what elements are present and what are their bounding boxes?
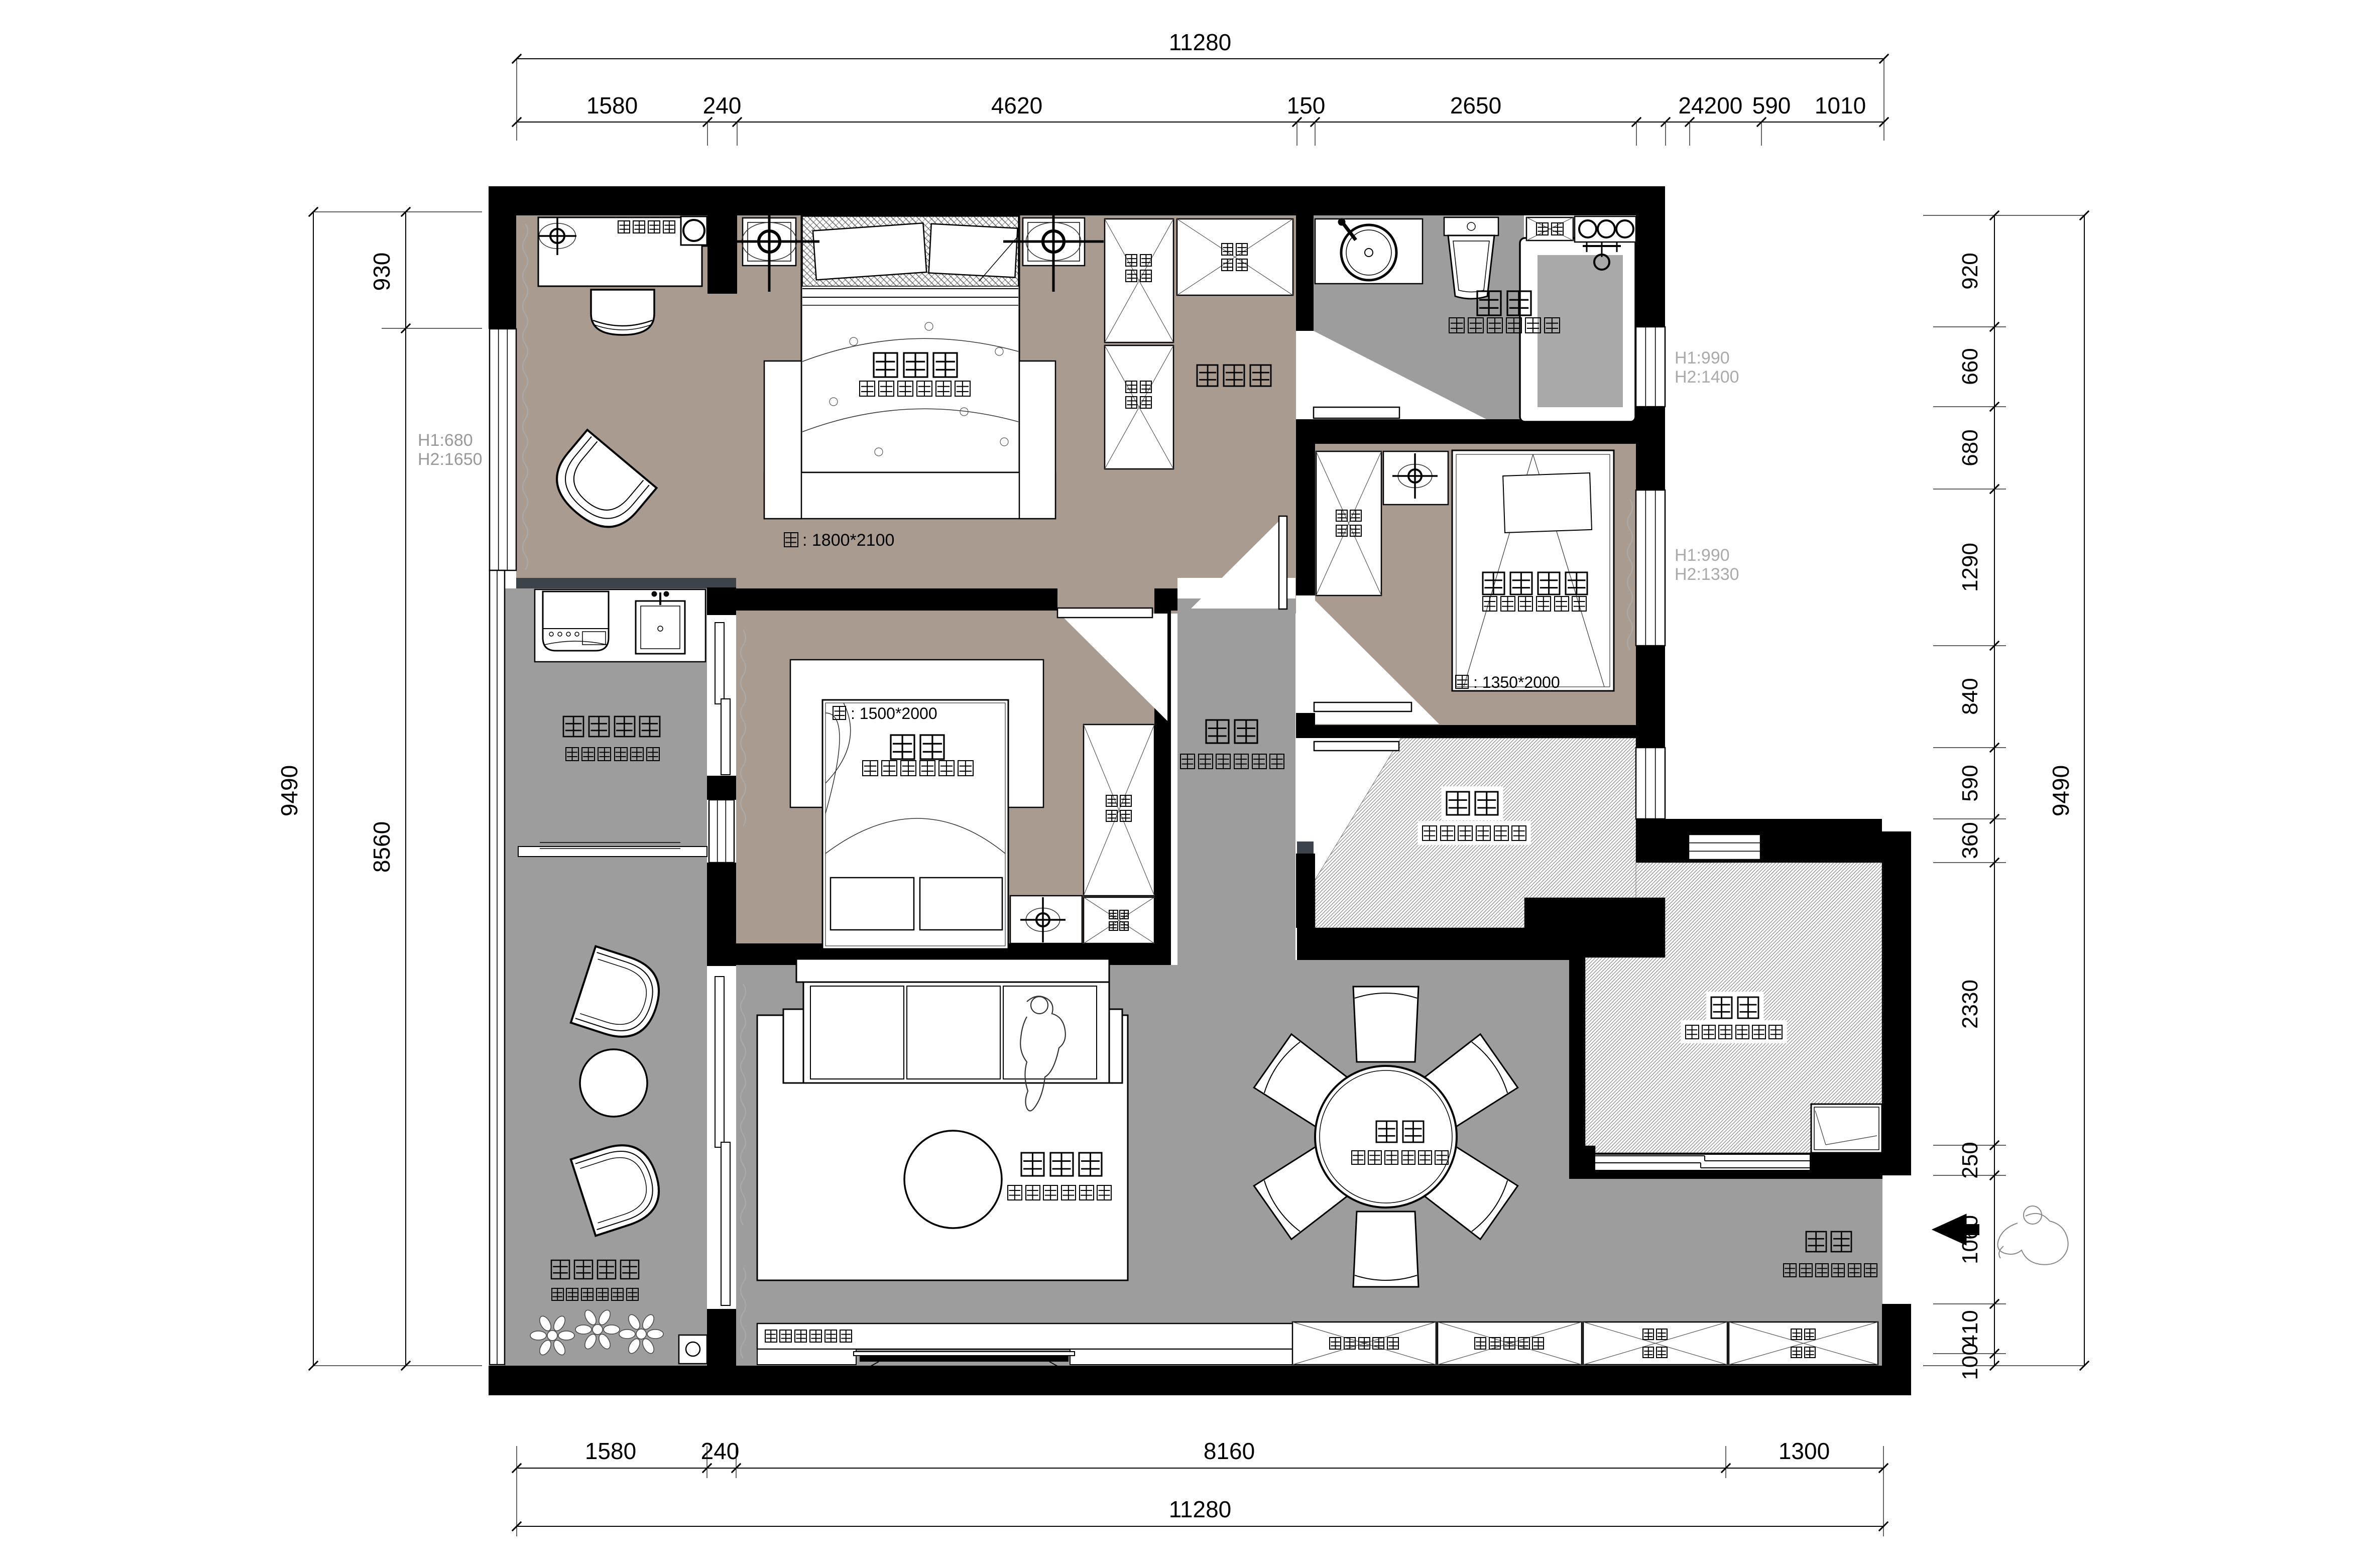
svg-text:9490: 9490 (2048, 765, 2074, 816)
svg-text:1060: 1060 (1958, 1215, 1982, 1264)
svg-text:840: 840 (1958, 678, 1982, 714)
svg-text:1580: 1580 (586, 92, 638, 118)
svg-text:1290: 1290 (1958, 543, 1982, 592)
svg-text:: 1350*2000: : 1350*2000 (1473, 673, 1560, 691)
svg-text:150: 150 (1287, 92, 1326, 118)
svg-text:: 1500*2000: : 1500*2000 (851, 704, 937, 722)
svg-text:930: 930 (369, 253, 395, 291)
svg-text:H1:990: H1:990 (1675, 348, 1730, 368)
svg-text:680: 680 (1958, 429, 1982, 466)
svg-text:360: 360 (1958, 822, 1982, 859)
svg-text:11280: 11280 (1169, 29, 1232, 55)
svg-text:11280: 11280 (1169, 1496, 1232, 1522)
svg-text:4620: 4620 (991, 92, 1042, 118)
svg-text:1580: 1580 (585, 1438, 636, 1464)
svg-text:8160: 8160 (1204, 1438, 1255, 1464)
svg-text:100: 100 (1958, 1343, 1982, 1380)
svg-text:250: 250 (1958, 1142, 1982, 1178)
svg-text:H1:990: H1:990 (1675, 546, 1730, 565)
svg-text:200: 200 (1704, 92, 1743, 118)
svg-text:1300: 1300 (1779, 1438, 1830, 1464)
svg-text:660: 660 (1958, 348, 1982, 385)
svg-text:590: 590 (1752, 92, 1791, 118)
svg-text:240: 240 (701, 1438, 740, 1464)
svg-text:2330: 2330 (1958, 980, 1982, 1029)
svg-text:1010: 1010 (1815, 92, 1866, 118)
svg-text:240: 240 (703, 92, 742, 118)
svg-text:: 1800*2100: : 1800*2100 (802, 531, 894, 550)
svg-text:H2:1330: H2:1330 (1675, 565, 1739, 584)
svg-text:9490: 9490 (276, 765, 302, 816)
svg-text:920: 920 (1958, 253, 1982, 289)
svg-text:8560: 8560 (369, 821, 395, 873)
svg-text:H2:1400: H2:1400 (1675, 368, 1739, 387)
svg-text:590: 590 (1958, 765, 1982, 801)
svg-text:24: 24 (1678, 92, 1704, 118)
svg-text:H2:1650: H2:1650 (418, 450, 483, 469)
svg-text:410: 410 (1958, 1310, 1982, 1347)
svg-text:2650: 2650 (1450, 92, 1501, 118)
svg-text:H1:680: H1:680 (418, 431, 473, 450)
